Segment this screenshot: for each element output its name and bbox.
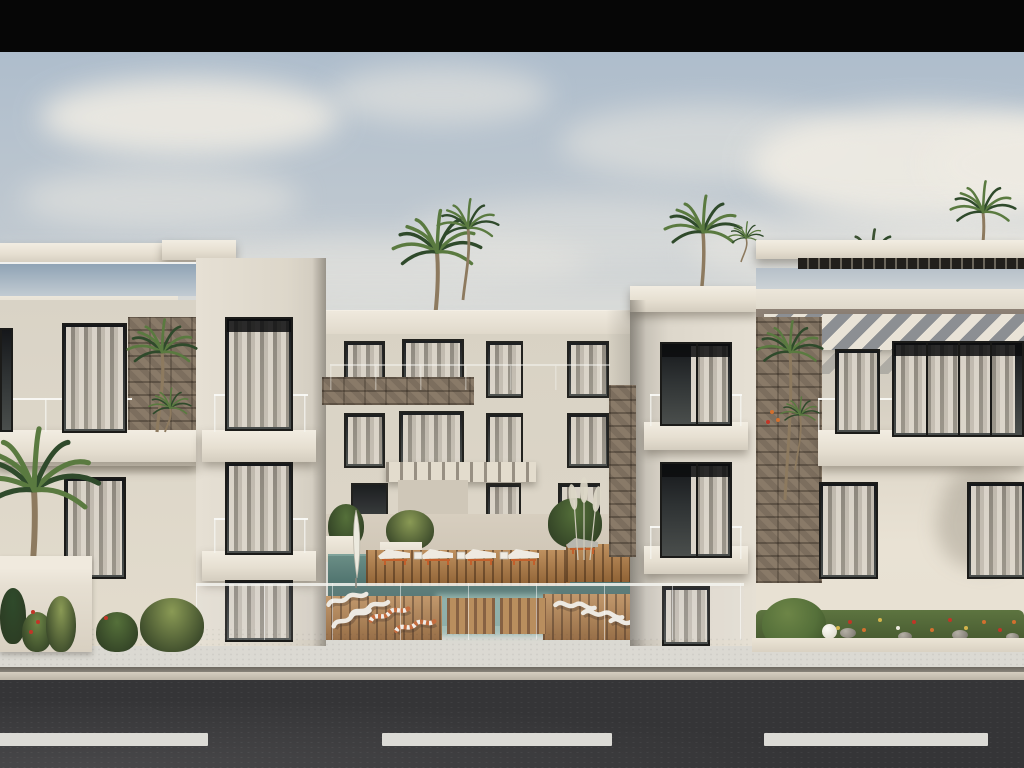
window — [660, 342, 732, 426]
lane-dash — [382, 733, 612, 746]
window-curtain — [229, 466, 289, 551]
rock — [840, 628, 856, 638]
flower — [998, 628, 1002, 632]
right-roof-beam — [756, 240, 1024, 259]
window — [567, 413, 609, 468]
window-curtain — [66, 327, 123, 429]
flower — [776, 418, 780, 422]
balcony-slab — [202, 551, 316, 581]
flower — [862, 628, 866, 632]
flower-bed-lip — [752, 638, 1024, 652]
right-parapet — [756, 289, 1024, 311]
balcony-slab — [0, 430, 196, 466]
window-mullion — [990, 343, 992, 435]
flower — [912, 620, 916, 624]
window-curtain — [839, 353, 877, 430]
flower — [878, 618, 882, 622]
flower — [848, 620, 852, 624]
flower — [31, 610, 35, 614]
lane-dash — [0, 733, 208, 746]
flower — [766, 420, 770, 424]
window — [225, 317, 293, 431]
right-roof-glass-band — [756, 268, 1024, 290]
window-curtain — [823, 486, 874, 575]
window — [892, 341, 1024, 437]
flower — [964, 626, 968, 630]
stone-panel — [128, 317, 196, 435]
balcony-slab — [644, 422, 748, 450]
cloud — [330, 66, 550, 124]
window — [0, 328, 13, 432]
flower — [36, 620, 40, 624]
window — [819, 482, 878, 579]
window-curtain — [348, 417, 382, 464]
planter-plant — [96, 612, 138, 652]
planter-plant — [140, 598, 204, 652]
window-curtain — [971, 486, 1022, 575]
asphalt-road — [0, 680, 1024, 768]
window-curtain — [571, 417, 606, 464]
window — [344, 413, 385, 468]
left-tower-roof-slab — [162, 240, 236, 260]
architectural-render: Architectural 3D exterior rendering of a… — [0, 0, 1024, 768]
window — [835, 349, 880, 434]
stone-panel — [609, 385, 636, 557]
window — [660, 462, 732, 558]
cloud — [40, 78, 340, 156]
window-mullion — [958, 343, 960, 435]
center-building-parapet — [322, 310, 652, 334]
window — [225, 462, 293, 555]
window-mullion — [926, 343, 928, 435]
window-curtain — [403, 415, 460, 465]
flower — [930, 628, 934, 632]
flower — [836, 626, 840, 630]
pool-deck-island — [366, 550, 570, 586]
glass-railing — [330, 364, 610, 390]
entrance-pergola — [386, 462, 536, 482]
window-mullion — [696, 344, 698, 424]
cloud — [20, 168, 300, 230]
flower — [29, 630, 33, 634]
balcony-slab — [202, 430, 316, 462]
window — [967, 482, 1024, 579]
window-curtain — [490, 417, 521, 464]
flower — [896, 626, 900, 630]
flower — [770, 410, 774, 414]
letterbox-bar — [0, 0, 1024, 52]
window-curtain — [896, 345, 1015, 433]
stone-panel — [756, 317, 822, 583]
sphere-lamp — [822, 624, 837, 639]
window-curtain — [229, 321, 289, 427]
right-tower-roof-slab — [630, 286, 758, 312]
shrub — [548, 498, 602, 548]
window-transom — [227, 319, 291, 332]
lane-dash — [764, 733, 988, 746]
flower — [982, 620, 986, 624]
window — [486, 413, 523, 468]
window-mullion — [696, 464, 698, 556]
flower — [104, 616, 108, 620]
flower — [948, 618, 952, 622]
right-roof-pergola-slats — [798, 258, 1024, 269]
planter-plant — [46, 596, 76, 652]
window — [399, 411, 464, 469]
window — [62, 323, 127, 433]
left-roof-glass-railing — [0, 262, 196, 296]
flower — [1012, 620, 1016, 624]
